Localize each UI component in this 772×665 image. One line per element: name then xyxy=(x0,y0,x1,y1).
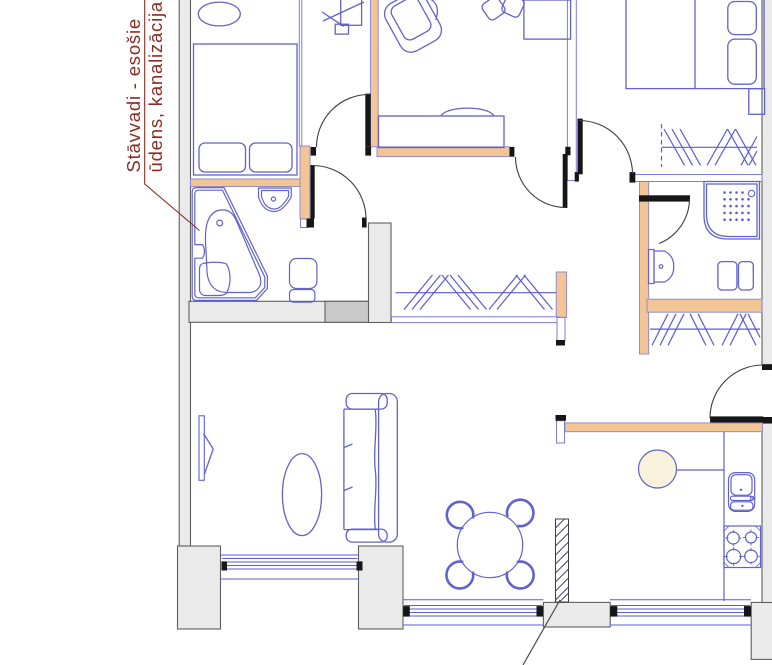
svg-text:Stāvvadi - esošie: Stāvvadi - esošie xyxy=(123,18,144,172)
svg-text:ūdens, kanalizācija: ūdens, kanalizācija xyxy=(145,1,166,173)
